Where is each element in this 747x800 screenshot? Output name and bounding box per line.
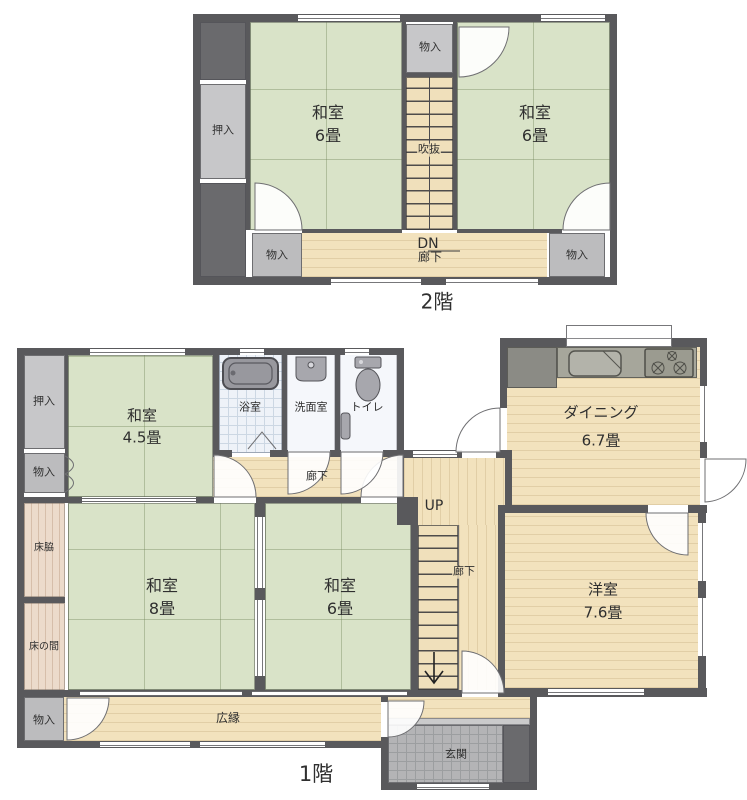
- label-floor1-title: 1階: [299, 762, 333, 786]
- wall-2f-closet-col: [246, 22, 250, 230]
- wall-corner-hall: [404, 497, 418, 525]
- room-hiroen: [24, 697, 381, 741]
- wall-bath-left: [213, 348, 219, 457]
- slider-hiroen-right: [252, 691, 407, 696]
- window-youshitsu-right-2: [698, 598, 706, 656]
- wall-senmen-right: [335, 348, 340, 457]
- label-genkan: 玄関: [445, 749, 467, 762]
- room-youshitsu: [505, 513, 698, 688]
- window-hiroen-1: [100, 742, 190, 747]
- label-washitsu8-name: 和室: [146, 577, 178, 595]
- wall-mid-3: [256, 497, 361, 503]
- floorplan-canvas: 押入 物入 和室 6畳 和室 6畳 吹抜 DN 廊下 物入 物入 2階: [0, 0, 747, 800]
- slider-hiroen-left: [80, 691, 242, 696]
- wall-2f-corridor-right: [457, 229, 562, 233]
- wall-toire-right-hall-left: [397, 348, 404, 525]
- wall-corridor-top-2: [270, 450, 288, 457]
- wall-2f-stair-right: [453, 22, 457, 230]
- label-fukinuke: 吹抜: [417, 144, 441, 157]
- label-washitsu8-size: 8畳: [149, 600, 175, 618]
- window-youshitsu-right-1: [698, 523, 706, 581]
- window-2f-top-right: [541, 15, 605, 21]
- fusuma-post-mid: [255, 588, 265, 600]
- label-floor2-title: 2階: [421, 291, 454, 314]
- wall-dining-left: [500, 347, 507, 408]
- wall-stairs-left-1f: [411, 525, 418, 697]
- label-washitsu-2f-right-size: 6畳: [522, 127, 548, 145]
- genkan-shoe-cabinet: [503, 725, 530, 783]
- wall-2f-corridor-left: [302, 229, 402, 233]
- wall-youshitsu-left: [498, 513, 505, 688]
- label-washitsu6-1f-name: 和室: [324, 577, 356, 595]
- void-box-2f-top: [200, 22, 246, 80]
- wall-genkan-right: [530, 693, 537, 790]
- wall-corridor-top-4: [383, 450, 404, 457]
- wall-2f-under-monoire: [406, 73, 453, 77]
- door-arc-backdoor: [456, 408, 500, 452]
- wall-corridor-top-1: [213, 450, 232, 457]
- wall-2f-left: [193, 14, 200, 285]
- label-monoire-1f-left: 物入: [33, 467, 55, 480]
- label-up: UP: [425, 498, 444, 514]
- label-tokowaki: 床脇: [34, 542, 54, 554]
- label-rouka-2f: 廊下: [418, 251, 442, 265]
- wall-genkan-left-stub: [381, 697, 388, 702]
- label-hiroen: 広縁: [216, 712, 240, 726]
- window-hall-top: [413, 451, 457, 457]
- label-monoire-2f-top: 物入: [419, 42, 441, 55]
- wall-2f-stair-left: [402, 22, 406, 230]
- window-2f-bottom-left: [331, 279, 421, 285]
- hall-up: [404, 458, 505, 525]
- window-2f-top-left: [298, 15, 400, 21]
- label-rouka-1f-top: 廊下: [306, 471, 328, 484]
- label-dining-size: 6.7畳: [582, 432, 621, 449]
- label-tokonoma: 床の間: [29, 641, 59, 653]
- slider-washitsu45-8: [82, 498, 196, 502]
- wall-bath-right: [282, 348, 287, 457]
- label-washitsu45-size: 4.5畳: [123, 429, 162, 446]
- hall-genkan: [388, 697, 530, 718]
- window-1f-top-washitsu45: [90, 349, 185, 355]
- room-washitsu-45: [68, 355, 213, 497]
- room-washitsu-8: [68, 503, 255, 690]
- wall-closet-col-1f: [65, 355, 68, 497]
- label-yokushitsu: 浴室: [239, 402, 261, 415]
- room-washitsu-6-1f: [265, 503, 411, 690]
- window-1f-top-bath: [240, 349, 264, 355]
- corridor-1f-stairs: [458, 525, 498, 690]
- wall-corridor-top-3: [330, 450, 341, 457]
- window-dining-right: [700, 386, 707, 442]
- label-toire: トイレ: [351, 402, 384, 415]
- window-2f-bottom-right: [446, 279, 538, 285]
- window-youshitsu-bottom: [548, 689, 644, 695]
- door-arc-dining-exterior: [705, 459, 746, 502]
- entrance-door: [417, 784, 489, 789]
- window-1f-top-toire: [345, 349, 369, 355]
- label-senmenshitsu: 洗面室: [295, 402, 328, 415]
- wall-youshitsu-top: [498, 505, 648, 513]
- label-youshitsu-size: 7.6畳: [584, 604, 623, 621]
- label-washitsu6-1f-size: 6畳: [327, 600, 353, 618]
- label-oshiire-1f: 押入: [33, 396, 55, 409]
- label-washitsu45-name: 和室: [127, 407, 157, 424]
- wall-stairs-bottom: [415, 690, 462, 697]
- kitchen-bay-window: [566, 325, 672, 347]
- label-dining-name: ダイニング: [563, 404, 638, 421]
- stairs-1f: [418, 525, 458, 690]
- genkan-step: [388, 718, 530, 725]
- void-box-2f-bottom: [200, 183, 246, 277]
- label-rouka-stairs: 廊下: [452, 566, 476, 579]
- wall-2f-right: [610, 14, 617, 285]
- label-youshitsu-name: 洋室: [588, 581, 618, 598]
- fusuma-post-bottom: [255, 676, 265, 690]
- label-monoire-2f-bl: 物入: [266, 250, 288, 263]
- label-washitsu-2f-left-name: 和室: [312, 104, 344, 122]
- label-monoire-2f-br: 物入: [566, 250, 588, 263]
- label-oshiire-2f: 押入: [212, 125, 234, 138]
- wall-1f-left: [17, 348, 24, 748]
- label-monoire-1f-bottom: 物入: [33, 715, 55, 728]
- window-hiroen-2: [200, 742, 325, 747]
- kitchen-counter: [557, 347, 697, 378]
- kitchen-cabinet-icon: [507, 347, 557, 388]
- wall-tokonoma-divider: [24, 597, 65, 603]
- label-washitsu-2f-left-size: 6畳: [315, 127, 341, 145]
- wall-mid-1: [17, 497, 82, 503]
- label-washitsu-2f-right-name: 和室: [519, 104, 551, 122]
- fusuma-post-top: [255, 503, 265, 517]
- wall-mid-2: [196, 497, 214, 503]
